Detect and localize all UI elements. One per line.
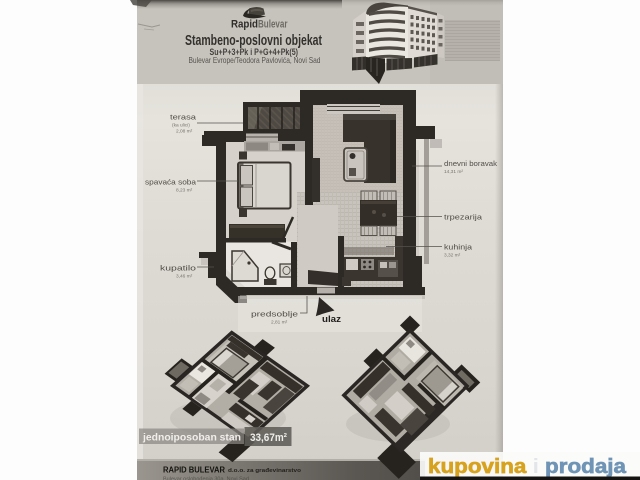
svg-text:dnevni boravak: dnevni boravak (444, 159, 497, 168)
svg-text:kupatilo: kupatilo (160, 264, 196, 273)
svg-text:kuhinja: kuhinja (444, 243, 473, 252)
svg-text:kupovina i prodaja: kupovina i prodaja (428, 455, 627, 478)
svg-text:8,23 m²: 8,23 m² (176, 188, 193, 194)
svg-text:trpezarija: trpezarija (444, 213, 483, 222)
svg-text:33,67m²: 33,67m² (250, 432, 287, 444)
svg-text:predsoblje: predsoblje (251, 310, 298, 319)
svg-text:Bulevar: Bulevar (258, 19, 288, 31)
svg-text:Bulevar Evrope/Teodora Pavlovi: Bulevar Evrope/Teodora Pavlovića, Novi S… (189, 55, 321, 65)
svg-text:RAPID BULEVAR: RAPID BULEVAR (163, 466, 225, 475)
svg-text:jednoiposoban stan: jednoiposoban stan (142, 433, 241, 444)
svg-text:terasa: terasa (170, 113, 197, 122)
svg-text:Bulevar oslobođenja 30a, Novi: Bulevar oslobođenja 30a, Novi Sad (163, 477, 249, 480)
svg-text:14,31 m²: 14,31 m² (444, 169, 463, 175)
svg-text:(ka ulici): (ka ulici) (172, 123, 190, 129)
svg-text:2,81 m²: 2,81 m² (271, 320, 288, 326)
svg-text:3,32 m²: 3,32 m² (444, 253, 461, 259)
svg-text:2,08 m²: 2,08 m² (176, 129, 193, 135)
svg-text:Rapid: Rapid (231, 19, 258, 31)
svg-text:spavaća soba: spavaća soba (145, 178, 197, 187)
svg-text:ulaz: ulaz (322, 314, 341, 325)
svg-text:3,46 m²: 3,46 m² (176, 274, 193, 280)
svg-text:d.o.o. za građevinarstvo: d.o.o. za građevinarstvo (228, 468, 302, 474)
